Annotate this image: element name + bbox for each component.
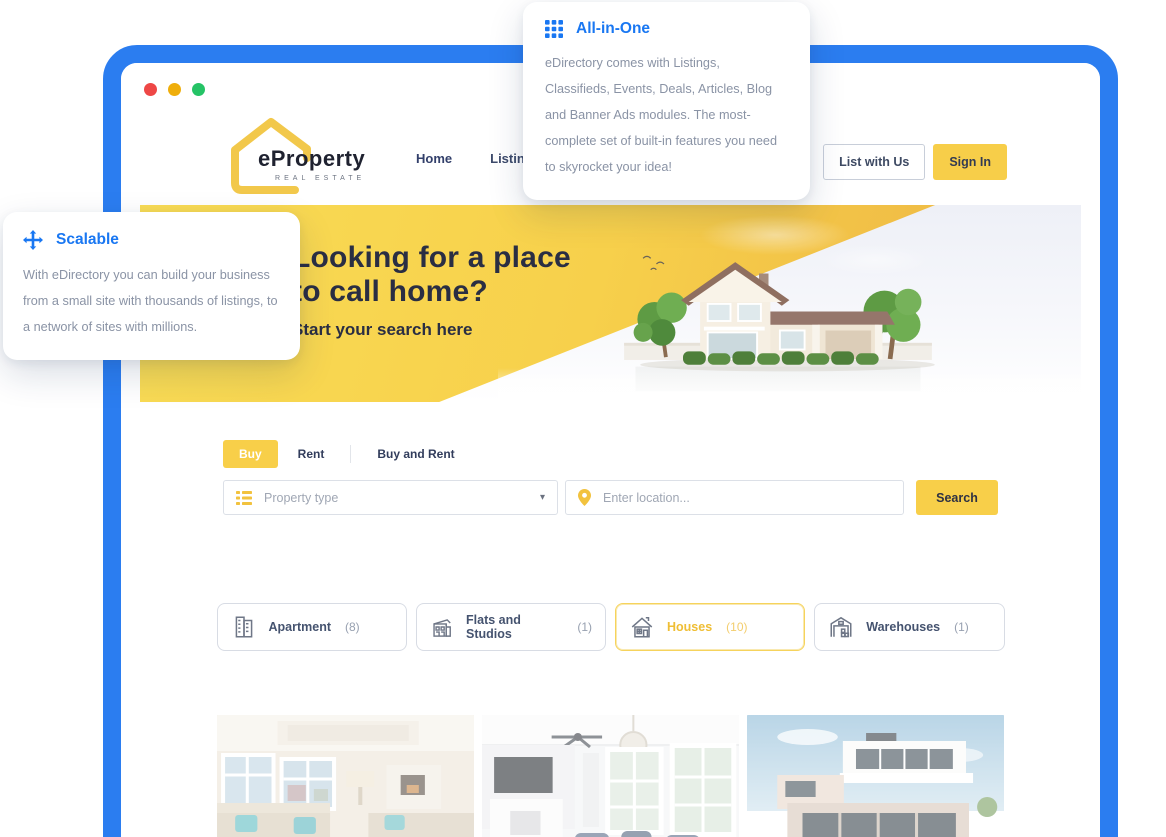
list-icon <box>236 491 252 505</box>
category-label: Warehouses <box>866 620 940 634</box>
flats-studios-icon <box>430 614 454 640</box>
living-room-photo-art <box>217 715 474 837</box>
main-nav: Home Listings <box>416 151 540 166</box>
category-count: (10) <box>726 620 747 634</box>
tab-divider <box>350 445 351 463</box>
listing-photos <box>217 715 1005 837</box>
category-card-apartment[interactable]: Apartment (8) <box>217 603 407 651</box>
category-card-houses[interactable]: Houses (10) <box>615 603 805 651</box>
house-icon <box>629 614 655 640</box>
search-section: Buy Rent Buy and Rent <box>223 440 998 515</box>
modern-house-photo-art <box>747 715 1004 837</box>
map-pin-icon <box>578 489 591 506</box>
minimize-window-button[interactable] <box>168 83 181 96</box>
category-label: Apartment <box>269 620 332 634</box>
tab-rent[interactable]: Rent <box>282 440 341 468</box>
tab-buy[interactable]: Buy <box>223 440 278 468</box>
hero-title: Looking for a place to call home? <box>292 241 571 309</box>
chevron-down-icon: ▾ <box>540 492 545 503</box>
callout-header: Scalable <box>23 230 280 250</box>
category-card-warehouses[interactable]: Warehouses (1) <box>814 603 1004 651</box>
hero-subtitle: Start your search here <box>292 320 571 340</box>
listing-photo-living-room[interactable] <box>217 715 474 837</box>
callout-all-in-one: All-in-One eDirectory comes with Listing… <box>523 2 810 200</box>
logo-tagline: REAL ESTATE <box>258 175 365 182</box>
header-actions: List with Us Sign In <box>823 144 1007 180</box>
search-fields-row: Property type ▾ Search <box>223 480 998 515</box>
traffic-lights <box>144 83 205 96</box>
logo-text: eProperty REAL ESTATE <box>258 146 365 182</box>
listing-photo-modern-house[interactable] <box>747 715 1004 837</box>
sign-in-button[interactable]: Sign In <box>933 144 1007 180</box>
hero-copy: Looking for a place to call home? Start … <box>292 241 571 340</box>
category-card-flats-and-studios[interactable]: Flats and Studios (1) <box>416 603 606 651</box>
grid-icon <box>545 20 563 38</box>
warehouse-icon <box>828 614 854 640</box>
logo-name: eProperty <box>258 146 365 171</box>
callout-body: With eDirectory you can build your busin… <box>23 262 280 340</box>
property-type-select[interactable]: Property type ▾ <box>223 480 558 515</box>
tab-buy-and-rent[interactable]: Buy and Rent <box>361 440 470 468</box>
banner-reflection-fade <box>498 368 1081 402</box>
callout-title: Scalable <box>56 231 119 249</box>
category-label: Houses <box>667 620 712 634</box>
location-field <box>565 480 904 515</box>
location-input[interactable] <box>603 491 891 505</box>
category-count: (8) <box>345 620 360 634</box>
deal-type-tabs: Buy Rent Buy and Rent <box>223 440 998 468</box>
category-label: Flats and Studios <box>466 613 563 641</box>
zoom-window-button[interactable] <box>192 83 205 96</box>
callout-scalable: Scalable With eDirectory you can build y… <box>3 212 300 360</box>
close-window-button[interactable] <box>144 83 157 96</box>
category-count: (1) <box>954 620 969 634</box>
family-room-photo-art <box>482 715 739 837</box>
logo[interactable]: eProperty REAL ESTATE <box>225 113 375 199</box>
apartment-icon <box>231 614 257 640</box>
listing-photo-family-room[interactable] <box>482 715 739 837</box>
search-button[interactable]: Search <box>916 480 998 515</box>
move-icon <box>23 230 43 250</box>
category-cards: Apartment (8) Flats and Studios (1) <box>217 603 1005 651</box>
callout-header: All-in-One <box>545 20 788 38</box>
screenshot-stage: eProperty REAL ESTATE Home Listings List… <box>0 0 1166 837</box>
property-type-value: Property type <box>264 491 338 505</box>
list-with-us-button[interactable]: List with Us <box>823 144 925 180</box>
callout-title: All-in-One <box>576 20 650 38</box>
category-count: (1) <box>577 620 592 634</box>
callout-body: eDirectory comes with Listings, Classifi… <box>545 50 788 180</box>
nav-item-home[interactable]: Home <box>416 151 452 166</box>
